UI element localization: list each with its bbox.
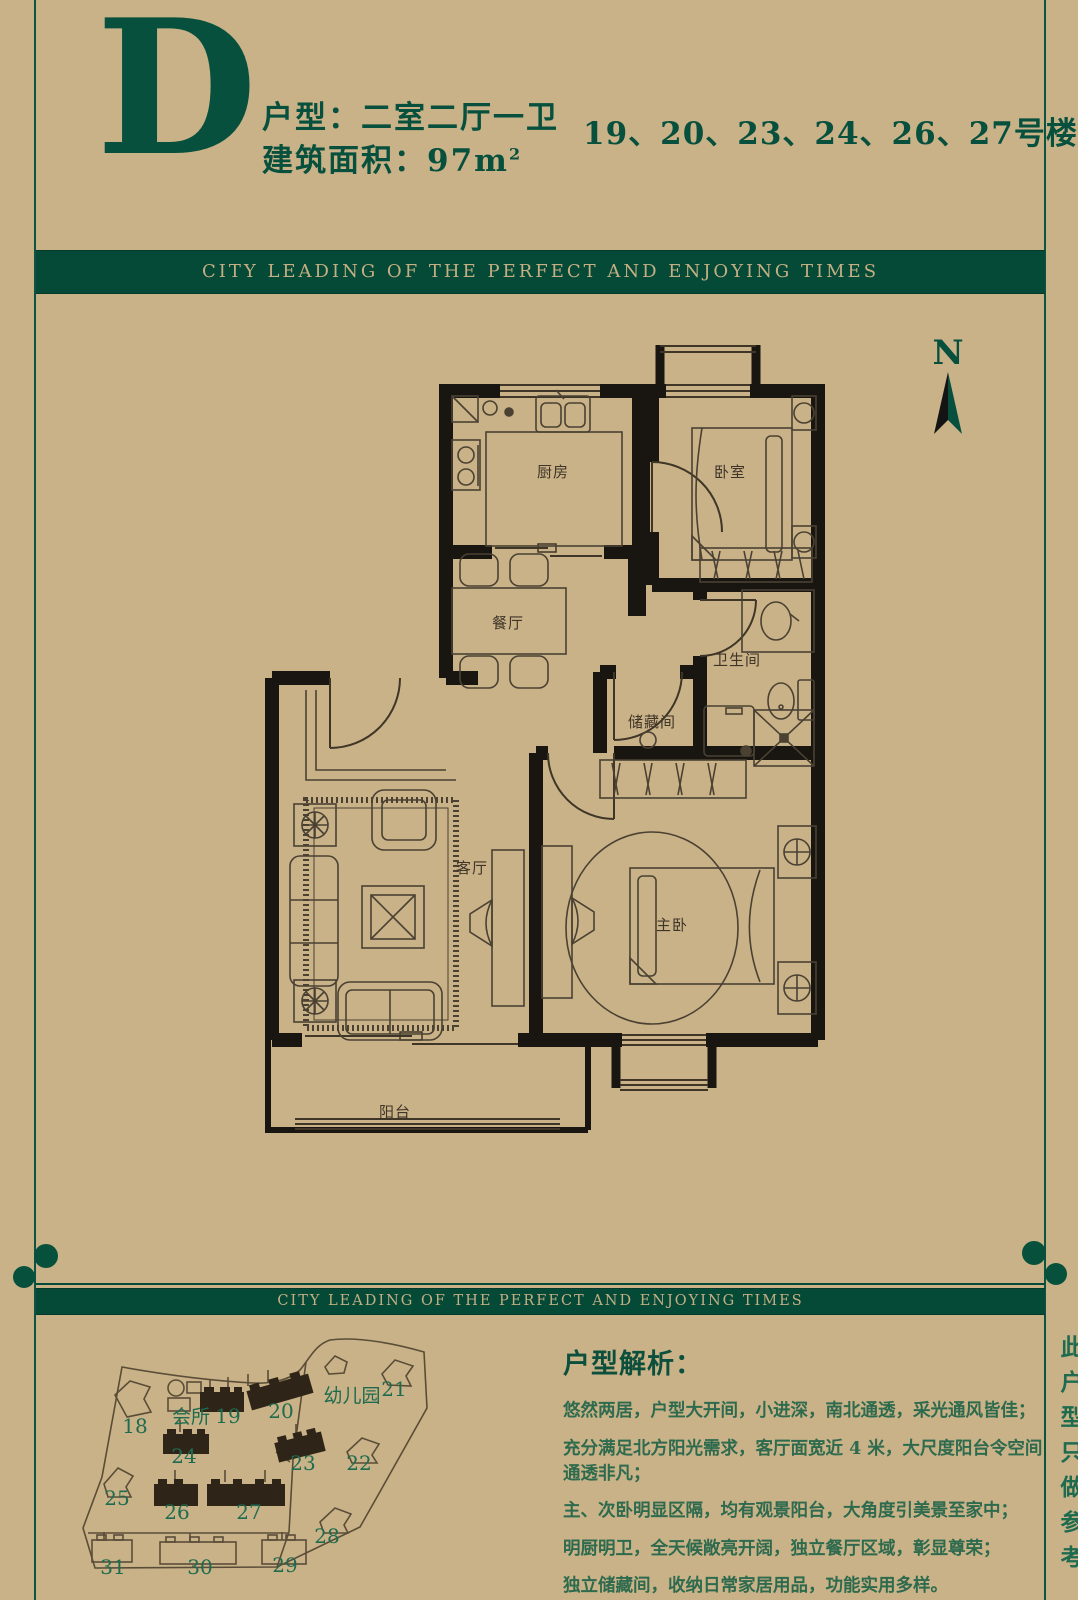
- walls-thick: [637, 384, 641, 616]
- unit-letter: D: [96, 0, 257, 205]
- room-label-living: 客厅: [456, 859, 488, 877]
- building-numbers-line: 19、20、23、24、26、27号楼: [583, 108, 1078, 153]
- unit-type-line: 户型：二室二厅一卫: [262, 92, 559, 137]
- left-dot-small: [13, 1266, 35, 1288]
- room-label-balcony: 阳台: [379, 1103, 411, 1121]
- sitemap-label-20: 20: [268, 1399, 293, 1423]
- sitemap-label-25: 25: [104, 1486, 129, 1510]
- area-value: 97m: [427, 143, 509, 179]
- sitemap: 18 会所 19 20 幼儿园 21 24 23 22 25 26 27 28 …: [70, 1320, 460, 1580]
- analysis-heading: 户型解析：: [563, 1342, 1053, 1381]
- right-dot-large: [1022, 1241, 1046, 1265]
- sitemap-label-clubhouse: 会所: [172, 1406, 210, 1428]
- window-lines: [295, 346, 756, 1129]
- sliding-doors: [305, 548, 602, 1044]
- analysis-line: 充分满足北方阳光需求，客厅面宽近 4 米，大尺度阳台令空间通透非凡；: [563, 1435, 1053, 1485]
- floorplan: 厨房 卧室 餐厅 卫生间 储藏间 客厅 主卧 阳台 N: [230, 325, 1000, 1160]
- room-label-master: 主卧: [656, 916, 688, 934]
- poster-page: D 户型：二室二厅一卫 建筑面积：97m2 19、20、23、24、26、27号…: [0, 0, 1078, 1600]
- sitemap-label-23: 23: [290, 1451, 315, 1475]
- kindergarten-house: [325, 1356, 347, 1374]
- bottom-banner: CITY LEADING OF THE PERFECT AND ENJOYING…: [36, 1288, 1045, 1315]
- room-label-bedroom: 卧室: [714, 463, 746, 481]
- sitemap-label-30: 30: [187, 1555, 212, 1579]
- compass-needle-dark: [934, 372, 948, 434]
- area-superscript: 2: [509, 145, 522, 164]
- bathroom-fixtures: [640, 590, 814, 766]
- clubhouse-annex: [187, 1382, 201, 1393]
- analysis-section: 户型解析： 悠然两居，户型大开间，小进深，南北通透，采光通风皆佳； 充分满足北方…: [563, 1342, 1053, 1600]
- analysis-line: 悠然两居，户型大开间，小进深，南北通透，采光通风皆佳；: [563, 1397, 1053, 1422]
- room-label-storage: 储藏间: [628, 713, 676, 731]
- balcony-walls: [265, 1040, 588, 1130]
- side-note-vertical: 此户型只做参考: [1052, 1335, 1078, 1580]
- living-furniture: [290, 690, 524, 1040]
- sitemap-label-29: 29: [272, 1553, 297, 1577]
- sitemap-label-26: 26: [164, 1500, 189, 1524]
- unit-area-line: 建筑面积：97m2: [262, 135, 522, 180]
- sitemap-label-28: 28: [314, 1524, 339, 1548]
- sitemap-label-kindergarten: 幼儿园: [323, 1385, 380, 1407]
- bottom-hairline: [36, 1283, 1045, 1285]
- sitemap-label-21: 21: [381, 1377, 406, 1401]
- clubhouse-shape: [168, 1380, 184, 1396]
- analysis-line: 主、次卧明显区隔，均有观景阳台，大角度引美景至家中；: [563, 1497, 1053, 1522]
- room-label-kitchen: 厨房: [537, 463, 569, 481]
- compass-north: N: [932, 333, 963, 434]
- bedroom-furniture: [692, 396, 816, 582]
- compass-needle-green: [948, 372, 962, 434]
- compass-n-label: N: [932, 333, 963, 373]
- left-frame-line: [34, 0, 36, 1600]
- area-label: 建筑面积：: [262, 143, 427, 179]
- master-furniture: [542, 760, 816, 1024]
- room-label-bathroom: 卫生间: [713, 651, 761, 669]
- analysis-line: 明厨明卫，全天候敞亮开阔，独立餐厅区域，彰显尊荣；: [563, 1535, 1053, 1560]
- sitemap-label-24: 24: [171, 1444, 196, 1468]
- top-banner: CITY LEADING OF THE PERFECT AND ENJOYING…: [36, 250, 1045, 294]
- sitemap-label-27: 27: [236, 1500, 261, 1524]
- room-label-dining: 餐厅: [492, 614, 524, 632]
- analysis-line: 独立储藏间，收纳日常家居用品，功能实用多样。: [563, 1572, 1053, 1597]
- sitemap-label-31: 31: [100, 1555, 125, 1579]
- house-18: [115, 1381, 151, 1417]
- right-dot-small: [1045, 1263, 1067, 1285]
- sitemap-label-18: 18: [122, 1414, 147, 1438]
- left-dot-large: [34, 1244, 58, 1268]
- sitemap-label-19: 19: [215, 1404, 240, 1428]
- sitemap-label-22: 22: [346, 1451, 371, 1475]
- walls: [272, 384, 818, 1040]
